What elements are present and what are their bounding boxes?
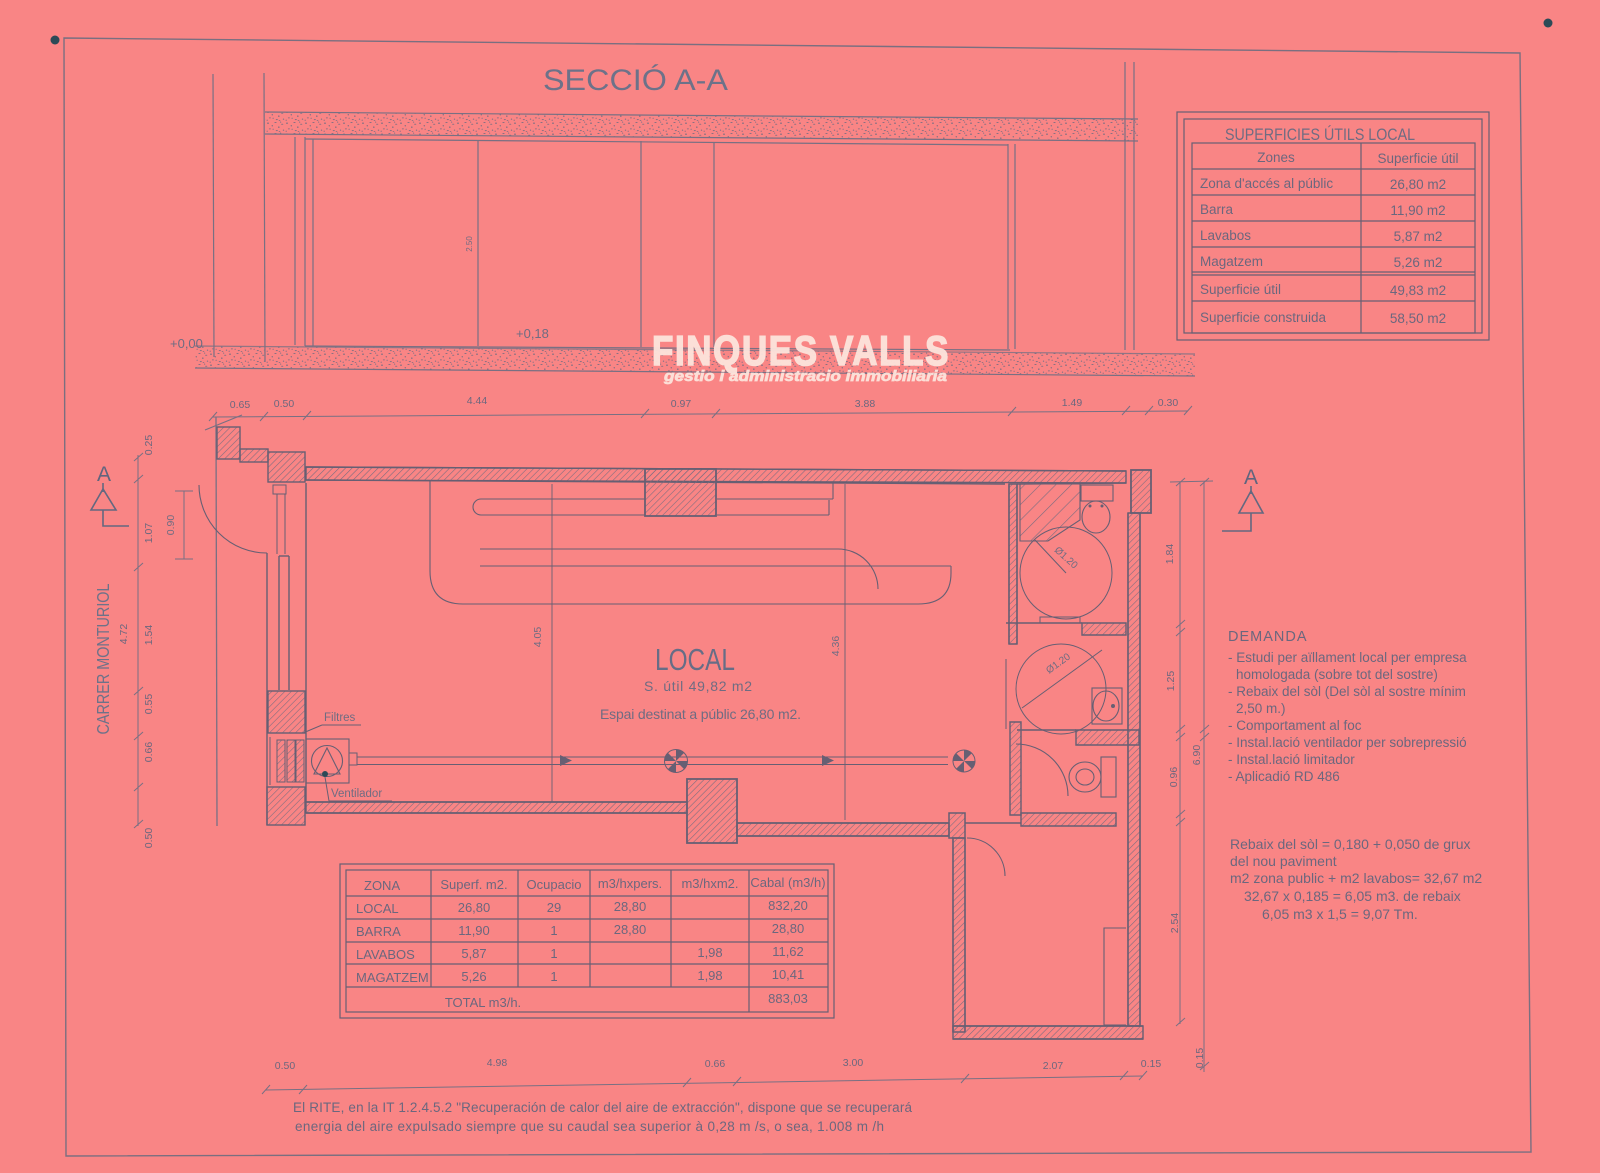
svg-text:gestio i administracio immobil: gestio i administracio immobiliaria bbox=[663, 369, 947, 385]
svg-text:Superficie útil: Superficie útil bbox=[1377, 151, 1458, 166]
svg-text:4.36: 4.36 bbox=[830, 636, 842, 657]
svg-text:29: 29 bbox=[547, 900, 561, 915]
svg-text:0.15: 0.15 bbox=[1141, 1058, 1162, 1070]
svg-text:ZONA: ZONA bbox=[364, 878, 400, 893]
svg-text:0.55: 0.55 bbox=[143, 694, 155, 715]
svg-text:A: A bbox=[1244, 466, 1258, 489]
svg-text:10,41: 10,41 bbox=[772, 967, 805, 982]
svg-text:Superficie construida: Superficie construida bbox=[1200, 310, 1327, 325]
svg-text:1.07: 1.07 bbox=[143, 523, 155, 544]
svg-text:LAVABOS: LAVABOS bbox=[356, 947, 415, 962]
svg-text:0.97: 0.97 bbox=[671, 398, 692, 410]
svg-text:- Rebaix del sòl (Del sòl al s: - Rebaix del sòl (Del sòl al sostre míni… bbox=[1228, 684, 1466, 699]
svg-text:Espai destinat a públic 26,80: Espai destinat a públic 26,80 m2. bbox=[600, 706, 801, 722]
svg-text:del nou paviment: del nou paviment bbox=[1230, 853, 1337, 869]
svg-text:2.07: 2.07 bbox=[1043, 1060, 1064, 1072]
svg-text:1,98: 1,98 bbox=[697, 968, 722, 983]
svg-text:- Instal.lació limitador: - Instal.lació limitador bbox=[1228, 752, 1355, 767]
svg-text:0.50: 0.50 bbox=[143, 828, 155, 849]
svg-text:1,98: 1,98 bbox=[697, 945, 722, 960]
svg-text:CARRER MONTURIOL: CARRER MONTURIOL bbox=[93, 583, 113, 734]
svg-text:883,03: 883,03 bbox=[768, 991, 808, 1006]
svg-text:1.49: 1.49 bbox=[1062, 397, 1083, 409]
svg-text:Barra: Barra bbox=[1200, 202, 1234, 217]
svg-text:58,50 m2: 58,50 m2 bbox=[1390, 311, 1446, 326]
svg-text:0.66: 0.66 bbox=[143, 742, 155, 763]
svg-text:S. útil 49,82 m2: S. útil 49,82 m2 bbox=[644, 678, 752, 694]
svg-text:- Instal.lació ventilador per: - Instal.lació ventilador per sobrepress… bbox=[1228, 735, 1467, 750]
svg-text:0.15: 0.15 bbox=[1194, 1048, 1206, 1069]
svg-text:832,20: 832,20 bbox=[768, 898, 808, 913]
svg-text:28,80: 28,80 bbox=[614, 922, 647, 937]
svg-text:m3/hxm2.: m3/hxm2. bbox=[681, 876, 738, 891]
svg-text:BARRA: BARRA bbox=[356, 924, 401, 939]
svg-text:m2 zona public + m2 lavabos= 3: m2 zona public + m2 lavabos= 32,67 m2 bbox=[1230, 870, 1482, 886]
svg-text:A: A bbox=[97, 463, 111, 486]
svg-text:6,05 m3 x 1,5 = 9,07 Tm.: 6,05 m3 x 1,5 = 9,07 Tm. bbox=[1262, 906, 1418, 922]
svg-text:1: 1 bbox=[550, 946, 557, 961]
svg-text:LOCAL: LOCAL bbox=[655, 642, 735, 677]
svg-text:0.96: 0.96 bbox=[1168, 767, 1180, 788]
svg-text:0.66: 0.66 bbox=[705, 1058, 726, 1070]
svg-text:4.44: 4.44 bbox=[467, 395, 488, 407]
svg-text:3.00: 3.00 bbox=[843, 1057, 864, 1069]
svg-text:4.98: 4.98 bbox=[487, 1057, 508, 1069]
svg-text:5,26 m2: 5,26 m2 bbox=[1394, 255, 1443, 270]
svg-text:2.54: 2.54 bbox=[1169, 913, 1181, 934]
svg-text:4.72: 4.72 bbox=[118, 624, 130, 645]
svg-text:+0,00: +0,00 bbox=[170, 336, 203, 351]
svg-text:1.54: 1.54 bbox=[143, 625, 155, 646]
svg-text:0.25: 0.25 bbox=[143, 435, 155, 456]
svg-text:2,50 m.): 2,50 m.) bbox=[1236, 701, 1286, 716]
svg-text:Filtres: Filtres bbox=[324, 712, 356, 724]
svg-text:TOTAL m3/h.: TOTAL m3/h. bbox=[445, 995, 521, 1010]
svg-text:26,80 m2: 26,80 m2 bbox=[1390, 177, 1446, 192]
svg-text:energia del aire expulsado sie: energia del aire expulsado siempre que s… bbox=[295, 1119, 884, 1134]
svg-text:5,87: 5,87 bbox=[461, 946, 486, 961]
svg-text:0.65: 0.65 bbox=[230, 399, 251, 411]
svg-text:Rebaix del sòl = 0,180 + 0,050: Rebaix del sòl = 0,180 + 0,050 de grux bbox=[1230, 836, 1471, 852]
svg-text:11,90: 11,90 bbox=[458, 923, 490, 938]
svg-text:0.50: 0.50 bbox=[274, 398, 295, 410]
svg-text:- Aplicadió RD 486: - Aplicadió RD 486 bbox=[1228, 769, 1340, 784]
svg-text:1.25: 1.25 bbox=[1165, 671, 1177, 692]
svg-text:32,67 x 0,185 = 6,05 m3. de re: 32,67 x 0,185 = 6,05 m3. de rebaix bbox=[1244, 888, 1461, 904]
svg-text:FINQUES VALLS: FINQUES VALLS bbox=[652, 327, 950, 374]
svg-text:SUPERFICIES ÚTILS LOCAL: SUPERFICIES ÚTILS LOCAL bbox=[1225, 125, 1415, 144]
svg-text:MAGATZEM: MAGATZEM bbox=[356, 970, 429, 985]
svg-text:1.84: 1.84 bbox=[1164, 544, 1176, 565]
svg-text:Ventilador: Ventilador bbox=[331, 788, 382, 800]
svg-text:- Comportament al foc: - Comportament al foc bbox=[1228, 718, 1362, 733]
svg-text:6.90: 6.90 bbox=[1191, 745, 1203, 766]
svg-text:2.50: 2.50 bbox=[465, 236, 474, 252]
svg-text:0.90: 0.90 bbox=[165, 515, 177, 536]
svg-text:28,80: 28,80 bbox=[614, 899, 647, 914]
svg-text:Magatzem: Magatzem bbox=[1200, 254, 1263, 269]
svg-text:m3/hxpers.: m3/hxpers. bbox=[598, 876, 662, 891]
svg-text:Zona d'accés al públic: Zona d'accés al públic bbox=[1200, 176, 1333, 191]
svg-text:Superf. m2.: Superf. m2. bbox=[440, 877, 507, 892]
svg-text:5,26: 5,26 bbox=[461, 969, 486, 984]
svg-text:49,83 m2: 49,83 m2 bbox=[1390, 283, 1446, 298]
svg-text:11,62: 11,62 bbox=[772, 944, 804, 959]
svg-text:28,80: 28,80 bbox=[772, 921, 805, 936]
svg-text:+0,18: +0,18 bbox=[516, 326, 549, 341]
svg-text:- Estudi per aïllament local p: - Estudi per aïllament local per empresa bbox=[1228, 650, 1467, 665]
svg-text:1: 1 bbox=[550, 969, 557, 984]
svg-text:26,80: 26,80 bbox=[458, 900, 491, 915]
svg-text:1: 1 bbox=[550, 923, 557, 938]
svg-text:0.50: 0.50 bbox=[275, 1060, 296, 1072]
svg-text:11,90 m2: 11,90 m2 bbox=[1390, 203, 1445, 218]
svg-text:DEMANDA: DEMANDA bbox=[1228, 629, 1308, 645]
svg-text:4.05: 4.05 bbox=[532, 627, 544, 648]
svg-text:homologada (sobre tot del sos: homologada (sobre tot del sostre) bbox=[1236, 667, 1438, 682]
svg-text:Lavabos: Lavabos bbox=[1200, 228, 1251, 243]
svg-text:LOCAL: LOCAL bbox=[356, 901, 399, 916]
svg-text:Zones: Zones bbox=[1257, 150, 1295, 165]
svg-text:0.30: 0.30 bbox=[1158, 397, 1179, 409]
svg-text:Superficie útil: Superficie útil bbox=[1200, 282, 1281, 297]
svg-text:Cabal (m3/h): Cabal (m3/h) bbox=[750, 875, 825, 890]
svg-text:Ocupacio: Ocupacio bbox=[527, 877, 582, 892]
svg-text:El RITE, en la IT 1.2.4.5.2 "R: El RITE, en la IT 1.2.4.5.2 "Recuperació… bbox=[293, 1100, 912, 1115]
svg-text:3.88: 3.88 bbox=[855, 398, 876, 410]
svg-text:SECCIÓ A-A: SECCIÓ A-A bbox=[543, 64, 728, 97]
svg-text:5,87 m2: 5,87 m2 bbox=[1394, 229, 1443, 244]
